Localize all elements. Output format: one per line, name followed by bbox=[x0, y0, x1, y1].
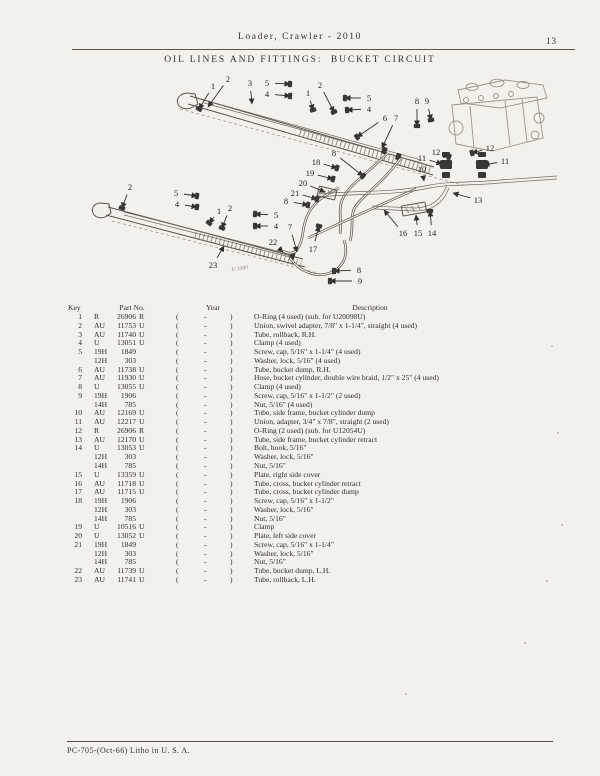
callout-leader bbox=[292, 235, 297, 252]
cell-key: 14 bbox=[66, 444, 82, 453]
scan-speck bbox=[546, 580, 548, 582]
table-row: 1819H1906(-)Screw, cap, 5/16" x 1-1/2" bbox=[66, 497, 590, 506]
callout-leader bbox=[324, 92, 334, 112]
table-row: 14H785(-)Nut, 5/16" bbox=[66, 462, 590, 471]
callout-number: 12 bbox=[432, 147, 441, 157]
column-header-part: Part No. bbox=[104, 303, 160, 312]
callout-number: 3 bbox=[248, 78, 252, 88]
engine-outline bbox=[449, 79, 547, 151]
callout-number: 5 bbox=[274, 210, 278, 220]
fitting-part bbox=[469, 149, 475, 156]
imprint-text: PC-705-(Oct-66) Litho in U. S. A. bbox=[67, 746, 190, 755]
catalog-page: Loader, Crawler - 2010 13 OIL LINES AND … bbox=[0, 0, 600, 776]
callout-number: 22 bbox=[269, 237, 278, 247]
callout-number: 13 bbox=[474, 195, 483, 205]
column-header-year: Year bbox=[197, 303, 229, 312]
page-number: 13 bbox=[546, 36, 557, 46]
callout-number: 5 bbox=[265, 78, 269, 88]
table-row: 14U13053U(-)Bolt, hook, 5/16" bbox=[66, 444, 590, 453]
callout-number: 8 bbox=[415, 96, 419, 106]
callout-number: 17 bbox=[309, 244, 318, 254]
scan-speck bbox=[524, 642, 526, 644]
fitting-part bbox=[332, 268, 336, 275]
callout-number: 4 bbox=[367, 104, 372, 114]
callout-number: 16 bbox=[399, 228, 408, 238]
table-row: 12H303(-)Washer, lock, 5/16" bbox=[66, 453, 590, 462]
fitting-part bbox=[353, 133, 360, 141]
callout-number: 6 bbox=[383, 113, 387, 123]
callout-number: 5 bbox=[367, 93, 371, 103]
callout-number: 5 bbox=[174, 188, 178, 198]
scan-speck bbox=[561, 524, 563, 526]
parts-diagram: U 3380 123541254678912121111101381819202… bbox=[0, 70, 600, 305]
fitting-part bbox=[288, 93, 293, 100]
callout-number: 7 bbox=[394, 113, 398, 123]
callout-leader bbox=[382, 125, 393, 148]
fitting-part bbox=[427, 117, 434, 122]
cell-yc: ) bbox=[230, 576, 233, 585]
header-rule bbox=[72, 49, 575, 50]
callout-number: 2 bbox=[318, 80, 322, 90]
fitting-part bbox=[345, 107, 349, 114]
callout-number: 20 bbox=[299, 178, 308, 188]
callout-number: 15 bbox=[414, 228, 423, 238]
callout-leader bbox=[357, 122, 378, 137]
callout-number: 9 bbox=[358, 276, 362, 286]
cell-suffix: U bbox=[139, 532, 144, 541]
cell-key: 5 bbox=[66, 348, 82, 357]
cell-suffix: U bbox=[139, 488, 144, 497]
cell-key: 18 bbox=[66, 497, 82, 506]
cell-yo: ( bbox=[176, 576, 179, 585]
callout-number: 12 bbox=[486, 143, 495, 153]
callout-number: 9 bbox=[425, 96, 429, 106]
callout-leader bbox=[275, 83, 290, 84]
fitting-part bbox=[253, 223, 257, 229]
callout-leader bbox=[340, 158, 363, 176]
section-title: OIL LINES AND FITTINGS: BUCKET CIRCUIT bbox=[0, 55, 600, 65]
figure-reference: U 3380 bbox=[231, 265, 248, 273]
callout-number: 2 bbox=[226, 74, 230, 84]
table-row: 14H785(-)Nut, 5/16" bbox=[66, 515, 590, 524]
table-row: 12H303(-)Washer, lock, 5/16" bbox=[66, 506, 590, 515]
table-row: 2AU11753U(-)Union, swivel adapter, 7/8" … bbox=[66, 322, 590, 331]
scan-speck bbox=[405, 693, 407, 695]
table-body: 1R26906R(-)O-Ring (4 used) (sub. for U20… bbox=[66, 313, 590, 585]
fitting-part bbox=[309, 107, 316, 113]
column-header-key: Key bbox=[68, 303, 81, 312]
table-row: 7AU11930U(-)Hose, bucket cylinder, doubl… bbox=[66, 374, 590, 383]
cell-key: 9 bbox=[66, 392, 82, 401]
callout-labels: 1235412546789121211111013818192021825412… bbox=[118, 74, 509, 286]
fitting-part bbox=[315, 223, 322, 229]
callout-number: 2 bbox=[228, 203, 232, 213]
cell-yd: - bbox=[204, 576, 207, 585]
cell-suffix: U bbox=[139, 339, 144, 348]
cell-key: 21 bbox=[66, 541, 82, 550]
fitting-part bbox=[194, 193, 199, 200]
column-header-description: Description bbox=[310, 303, 430, 312]
callout-number: 21 bbox=[291, 188, 300, 198]
fitting-part bbox=[218, 225, 226, 231]
fitting-part bbox=[305, 201, 310, 208]
fitting-part bbox=[328, 278, 332, 284]
parts-table: Key Part No. Year Description 1R26906R(-… bbox=[66, 303, 590, 585]
callout-number: 2 bbox=[128, 182, 132, 192]
callout-leader bbox=[122, 194, 127, 208]
fittings bbox=[317, 152, 488, 216]
callout-leader bbox=[275, 95, 290, 96]
callout-number: 11 bbox=[418, 153, 426, 163]
callout-leader bbox=[384, 210, 398, 227]
callout-leader bbox=[453, 193, 470, 198]
fitting-part bbox=[253, 211, 257, 218]
callout-number: 7 bbox=[288, 222, 292, 232]
fitting-part bbox=[330, 109, 338, 116]
callout-number: 4 bbox=[274, 221, 279, 231]
fitting-part bbox=[194, 204, 199, 211]
table-row: 3AU11740U(-)Tube, rollback, R.H. bbox=[66, 331, 590, 340]
cell-key: 23 bbox=[66, 576, 82, 585]
cell-num: 11741 bbox=[102, 576, 136, 585]
fitting-part bbox=[343, 95, 347, 101]
callout-leader bbox=[318, 175, 333, 179]
fitting-part bbox=[334, 164, 340, 171]
table-row: 19U10516U(-)Clamp bbox=[66, 523, 590, 532]
fitting-part bbox=[427, 209, 434, 214]
callout-leader bbox=[430, 211, 431, 225]
callout-number: 19 bbox=[306, 168, 315, 178]
callout-leader bbox=[303, 195, 317, 199]
callout-number: 10 bbox=[418, 164, 427, 174]
fitting-part bbox=[288, 81, 292, 88]
callout-leader bbox=[294, 202, 308, 205]
callout-number: 18 bbox=[312, 157, 321, 167]
callout-number: 1 bbox=[217, 206, 221, 216]
callout-number: 8 bbox=[332, 148, 336, 158]
cell-suffix: U bbox=[139, 444, 144, 453]
document-title: Loader, Crawler - 2010 bbox=[0, 32, 600, 42]
callout-number: 4 bbox=[175, 199, 180, 209]
scan-speck bbox=[557, 432, 559, 434]
table-row: 2119H1849(-)Screw, cap, 5/16" x 1-1/4" bbox=[66, 541, 590, 550]
table-row: 919H1906(-)Screw, cap, 5/16" x 1-1/2" (2… bbox=[66, 392, 590, 401]
scan-speck bbox=[551, 345, 553, 347]
callout-number: 23 bbox=[209, 260, 218, 270]
table-row: 13AU12170U(-)Tube, side frame, bucket cy… bbox=[66, 436, 590, 445]
fitting-part bbox=[414, 124, 420, 128]
table-row: 12H303(-)Washer, lock, 5/16" bbox=[66, 550, 590, 559]
callout-number: 8 bbox=[284, 196, 288, 206]
fitting-part bbox=[330, 175, 336, 182]
callout-leader bbox=[251, 91, 252, 104]
callout-leader bbox=[416, 215, 417, 225]
callout-number: 14 bbox=[428, 228, 437, 238]
cell-desc: Tube, rollback, L.H. bbox=[254, 576, 316, 585]
right-side-cover-plate bbox=[401, 202, 426, 216]
callout-number: 4 bbox=[265, 89, 270, 99]
lower-boom bbox=[92, 203, 318, 273]
callout-number: 8 bbox=[357, 265, 361, 275]
cell-suffix: U bbox=[139, 383, 144, 392]
table-row: 23AU11741U(-)Tube, rollback, L.H. bbox=[66, 576, 590, 585]
table-row: 22AU11739U(-)Tube, bucket dump, L.H. bbox=[66, 567, 590, 576]
callout-leader bbox=[423, 177, 424, 181]
footer-rule bbox=[67, 741, 553, 742]
callout-leader bbox=[347, 109, 361, 110]
callout-number: 11 bbox=[501, 156, 509, 166]
cell-suffix: U bbox=[139, 576, 144, 585]
callout-number: 1 bbox=[306, 88, 310, 98]
callout-number: 1 bbox=[211, 81, 215, 91]
